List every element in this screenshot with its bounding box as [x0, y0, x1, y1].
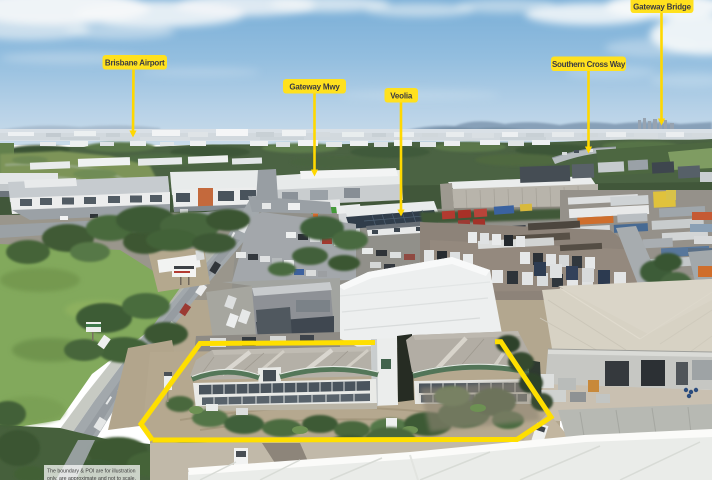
svg-text:Southern Cross Way: Southern Cross Way	[552, 60, 626, 69]
svg-text:Brisbane Airport: Brisbane Airport	[105, 59, 165, 68]
svg-text:Veolia: Veolia	[390, 92, 413, 101]
svg-text:only, are approximate and not: only, are approximate and not to scale.	[47, 476, 136, 480]
svg-text:The boundary & POI are for ill: The boundary & POI are for illustration	[47, 469, 136, 475]
svg-text:Gateway Mwy: Gateway Mwy	[289, 83, 340, 92]
svg-text:Gateway Bridge: Gateway Bridge	[633, 3, 691, 12]
